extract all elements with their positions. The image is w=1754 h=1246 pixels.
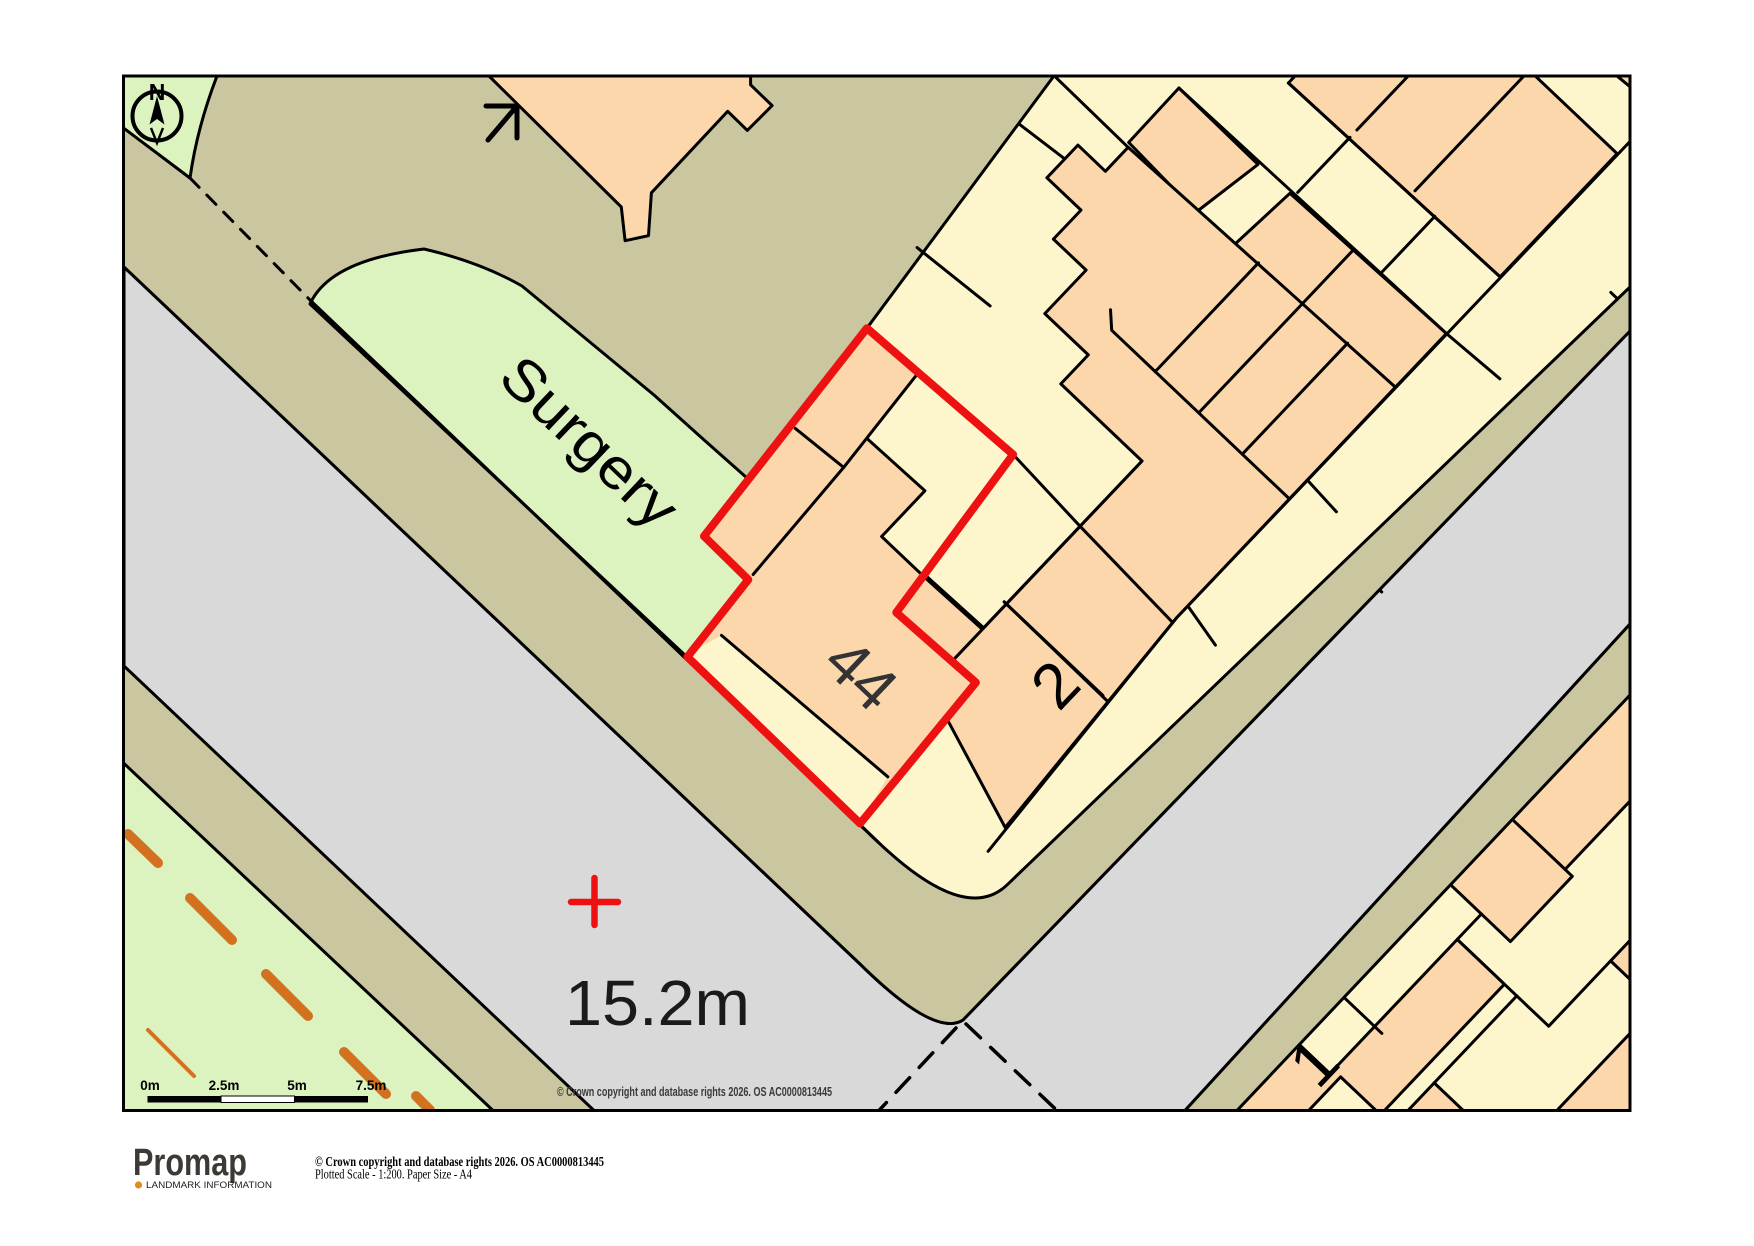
svg-text:LANDMARK INFORMATION: LANDMARK INFORMATION [146, 1180, 272, 1191]
svg-text:Plotted Scale - 1:200. Paper S: Plotted Scale - 1:200. Paper Size - A4 [315, 1168, 472, 1183]
svg-text:Promap: Promap [133, 1142, 247, 1184]
svg-text:2.5m: 2.5m [209, 1078, 240, 1093]
svg-text:5m: 5m [287, 1078, 307, 1093]
svg-text:15.2m: 15.2m [565, 967, 750, 1039]
svg-text:7.5m: 7.5m [356, 1078, 387, 1093]
svg-text:0m: 0m [140, 1078, 160, 1093]
svg-text:© Crown copyright and database: © Crown copyright and database rights 20… [557, 1085, 832, 1099]
